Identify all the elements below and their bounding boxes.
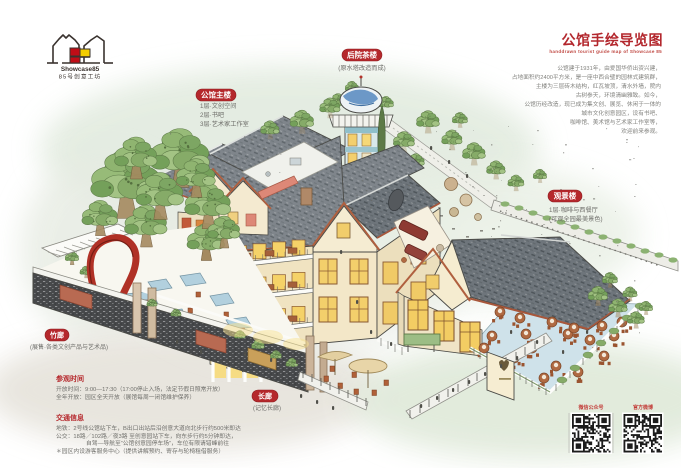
svg-text:(可观全园最美景色): (可观全园最美景色) — [549, 215, 603, 223]
svg-text:古树参天，环境清幽雅致。如今，: 古树参天，环境清幽雅致。如今， — [576, 91, 661, 99]
svg-text:后院茶楼: 后院茶楼 — [347, 50, 377, 60]
svg-text:公馆历经改造，现已成为集文创、展览、休闲于一体的: 公馆历经改造，现已成为集文创、展览、休闲于一体的 — [525, 100, 662, 108]
svg-text:咖啡馆、美术馆与艺术家工作室等，: 咖啡馆、美术馆与艺术家工作室等， — [570, 118, 661, 126]
svg-text:公馆建于1931年，由爱国华侨出资兴建，: 公馆建于1931年，由爱国华侨出资兴建， — [557, 64, 661, 72]
svg-text:开放时间：9:00—17:30（17:00停止入场，法定节假: 开放时间：9:00—17:30（17:00停止入场，法定节假日照常开放） — [56, 385, 224, 393]
svg-text:微信公众号: 微信公众号 — [577, 404, 603, 411]
svg-text:城市文化创意园区，设有书吧、: 城市文化创意园区，设有书吧、 — [581, 109, 661, 117]
svg-text:Showcase85: Showcase85 — [61, 66, 100, 73]
svg-text:欢迎前来参观。: 欢迎前来参观。 — [621, 127, 661, 135]
svg-text:公馆主楼: 公馆主楼 — [201, 90, 231, 100]
svg-text:自驾—导航至“公馆创意园停车场”，车位有限请错峰前往: 自驾—导航至“公馆创意园停车场”，车位有限请错峰前往 — [86, 439, 229, 447]
svg-text:3层·艺术家工作室: 3层·艺术家工作室 — [200, 120, 249, 128]
svg-text:观景楼: 观景楼 — [554, 191, 577, 201]
svg-text:＊园区内设游客服务中心（提供讲解预约、寄存与轮椅租借服务）: ＊园区内设游客服务中心（提供讲解预约、寄存与轮椅租借服务） — [56, 447, 224, 455]
svg-text:(原水塔改造而成): (原水塔改造而成) — [338, 64, 385, 72]
svg-text:主楼为三层砖木结构，红瓦坡顶，清水外墙，院内: 主楼为三层砖木结构，红瓦坡顶，清水外墙，院内 — [536, 82, 661, 90]
svg-text:1层·文创空间: 1层·文创空间 — [200, 102, 236, 110]
svg-text:85号创意工坊: 85号创意工坊 — [59, 73, 101, 81]
svg-text:长廊: 长廊 — [258, 392, 272, 401]
svg-text:(展售·各类文创产品与艺术品): (展售·各类文创产品与艺术品) — [30, 343, 108, 351]
svg-text:交通信息: 交通信息 — [56, 413, 84, 422]
svg-text:全年开放：园区全天开放（展馆每周一闭馆维护保养）: 全年开放：园区全天开放（展馆每周一闭馆维护保养） — [56, 393, 195, 401]
svg-text:公交：18路／102路／夜3路 至创意园站下车，向东步行约5: 公交：18路／102路／夜3路 至创意园站下车，向东步行约5分钟即达， — [56, 432, 237, 440]
svg-text:占地面积约2400平方米，是一座中西合璧的园林式建筑群，: 占地面积约2400平方米，是一座中西合璧的园林式建筑群， — [512, 73, 661, 81]
svg-text:官方微博: 官方微博 — [633, 404, 653, 411]
svg-text:1层·咖啡与西餐厅: 1层·咖啡与西餐厅 — [549, 206, 598, 214]
svg-text:handdrawn tourist guide map of: handdrawn tourist guide map of Showcase … — [549, 49, 662, 54]
svg-text:(记忆长廊): (记忆长廊) — [253, 404, 281, 412]
svg-text:2层·书吧: 2层·书吧 — [200, 111, 224, 119]
svg-text:公馆手绘导览图: 公馆手绘导览图 — [562, 32, 664, 48]
svg-text:竹廊: 竹廊 — [49, 331, 64, 340]
svg-text:参观时间: 参观时间 — [56, 374, 84, 383]
svg-text:地铁：2号线公馆站下车，B出口出站后沿创意大道向北步行约50: 地铁：2号线公馆站下车，B出口出站后沿创意大道向北步行约500米即达 — [56, 424, 241, 432]
